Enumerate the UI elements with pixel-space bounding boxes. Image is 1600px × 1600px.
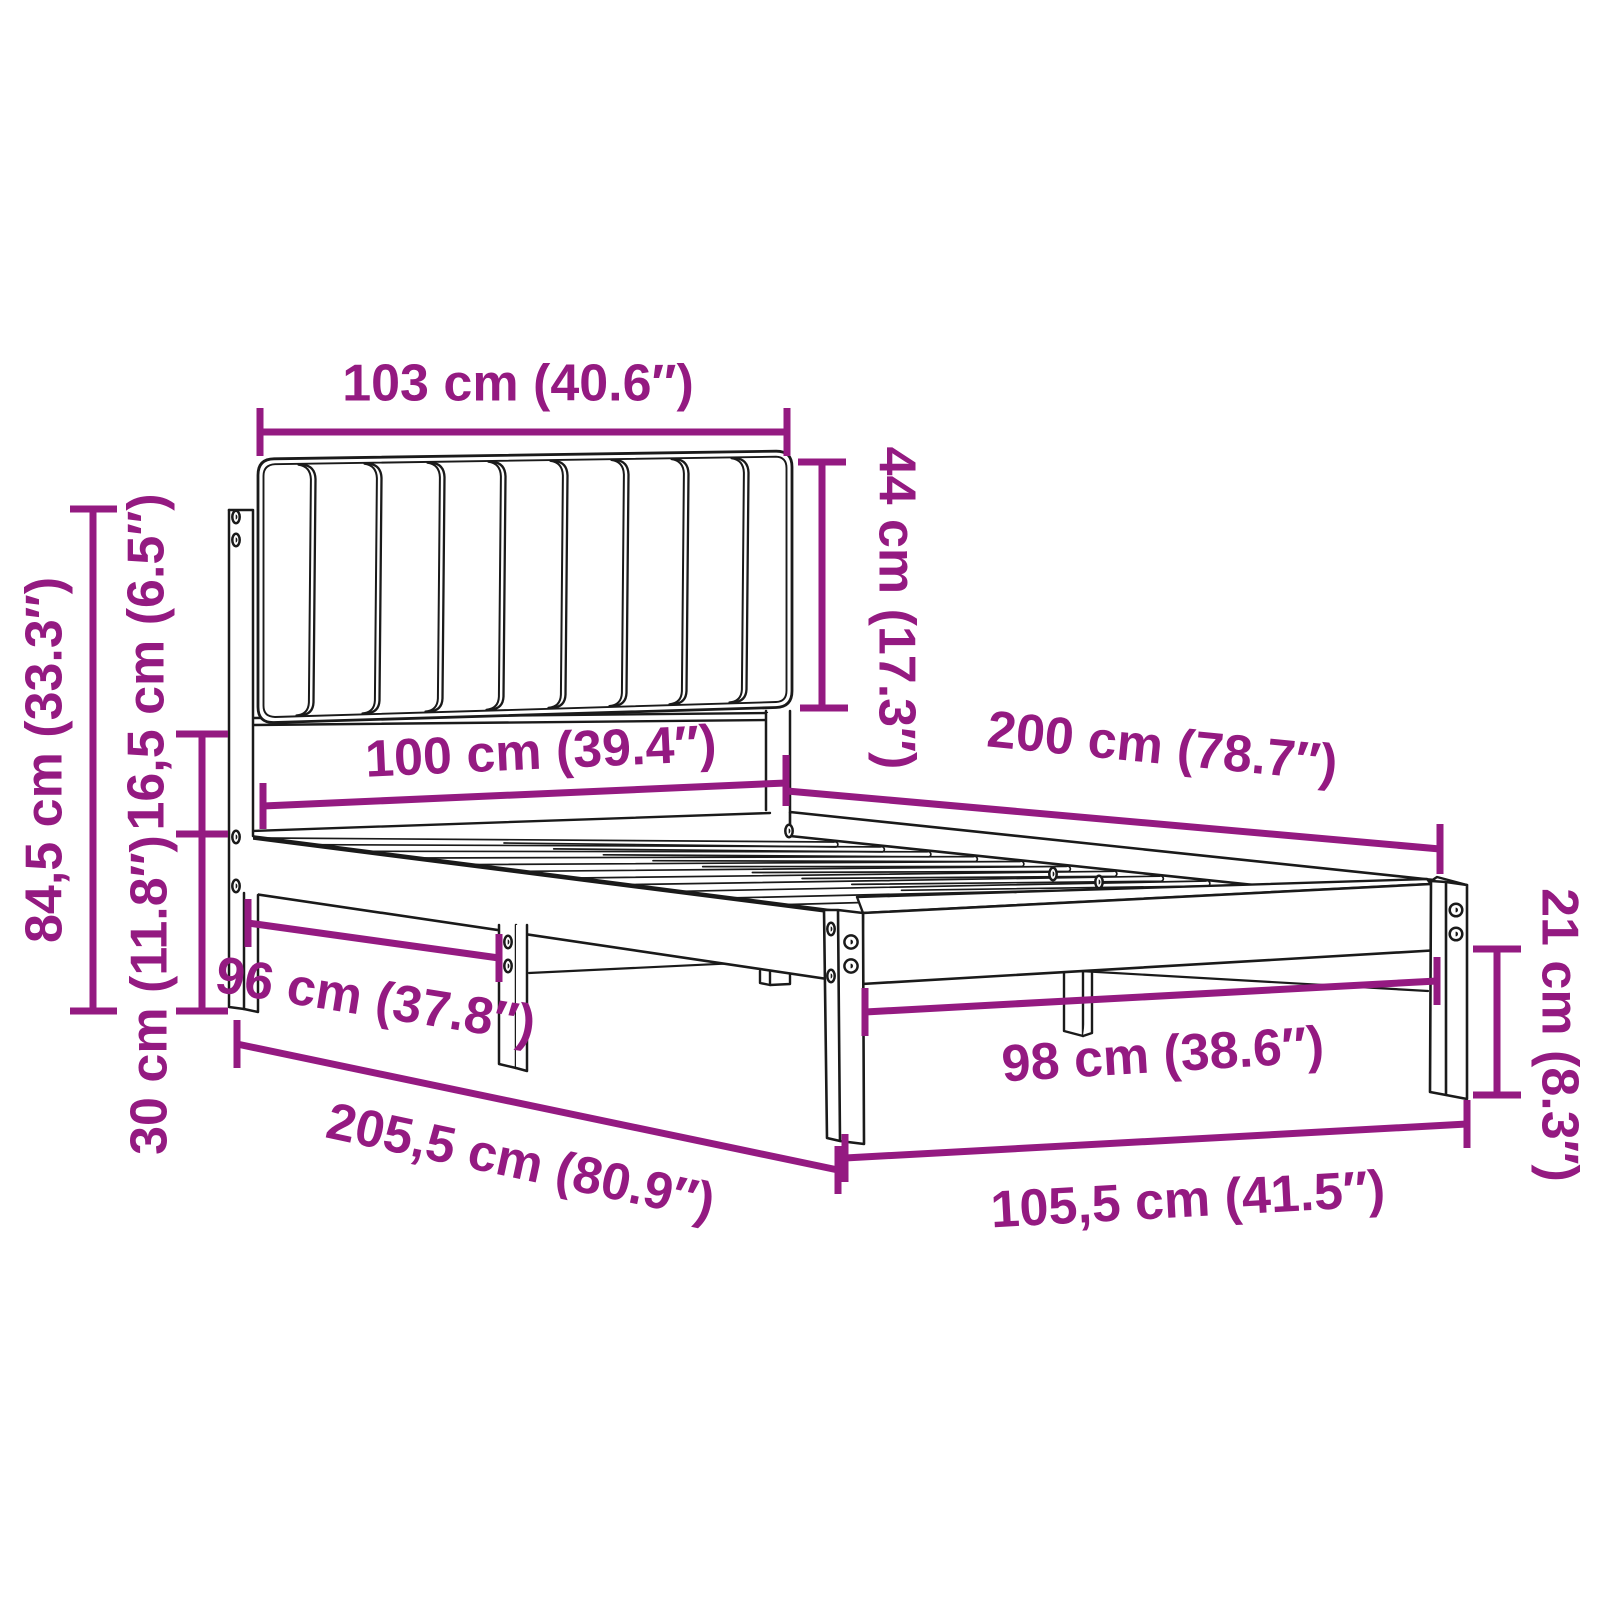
svg-text:84,5 cm (33.3″): 84,5 cm (33.3″) [16,577,74,943]
svg-text:103 cm (40.6″): 103 cm (40.6″) [342,355,694,413]
svg-text:21 cm (8.3″): 21 cm (8.3″) [1530,888,1588,1182]
svg-text:44 cm (17.3″): 44 cm (17.3″) [867,447,925,770]
svg-text:16,5 cm (6.5″): 16,5 cm (6.5″) [118,493,176,830]
svg-text:30 cm (11.8″): 30 cm (11.8″) [121,835,179,1155]
